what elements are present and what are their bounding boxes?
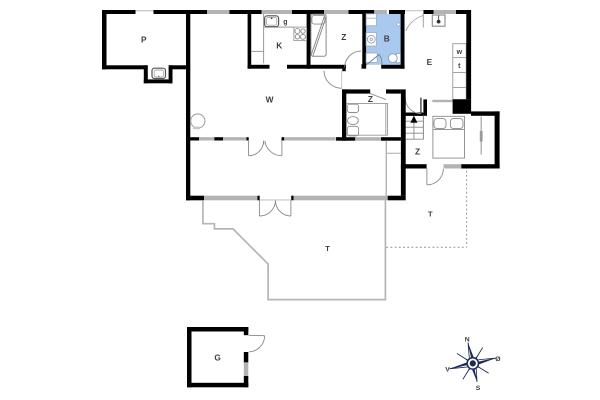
svg-text:Z: Z [368,94,373,104]
svg-text:N: N [465,337,470,344]
svg-text:T: T [428,210,433,219]
svg-text:B: B [384,34,390,44]
svg-text:g: g [283,19,287,26]
svg-text:V: V [445,366,450,373]
svg-text:Z: Z [341,32,346,42]
svg-text:S: S [476,385,481,392]
svg-text:P: P [141,35,147,45]
svg-text:G: G [214,353,220,363]
svg-text:E: E [427,57,433,67]
svg-text:Z: Z [415,146,420,156]
svg-text:w: w [456,49,463,56]
svg-text:W: W [266,95,274,105]
svg-text:T: T [325,244,330,253]
svg-text:K: K [276,41,282,51]
svg-text:Ø: Ø [495,356,500,363]
